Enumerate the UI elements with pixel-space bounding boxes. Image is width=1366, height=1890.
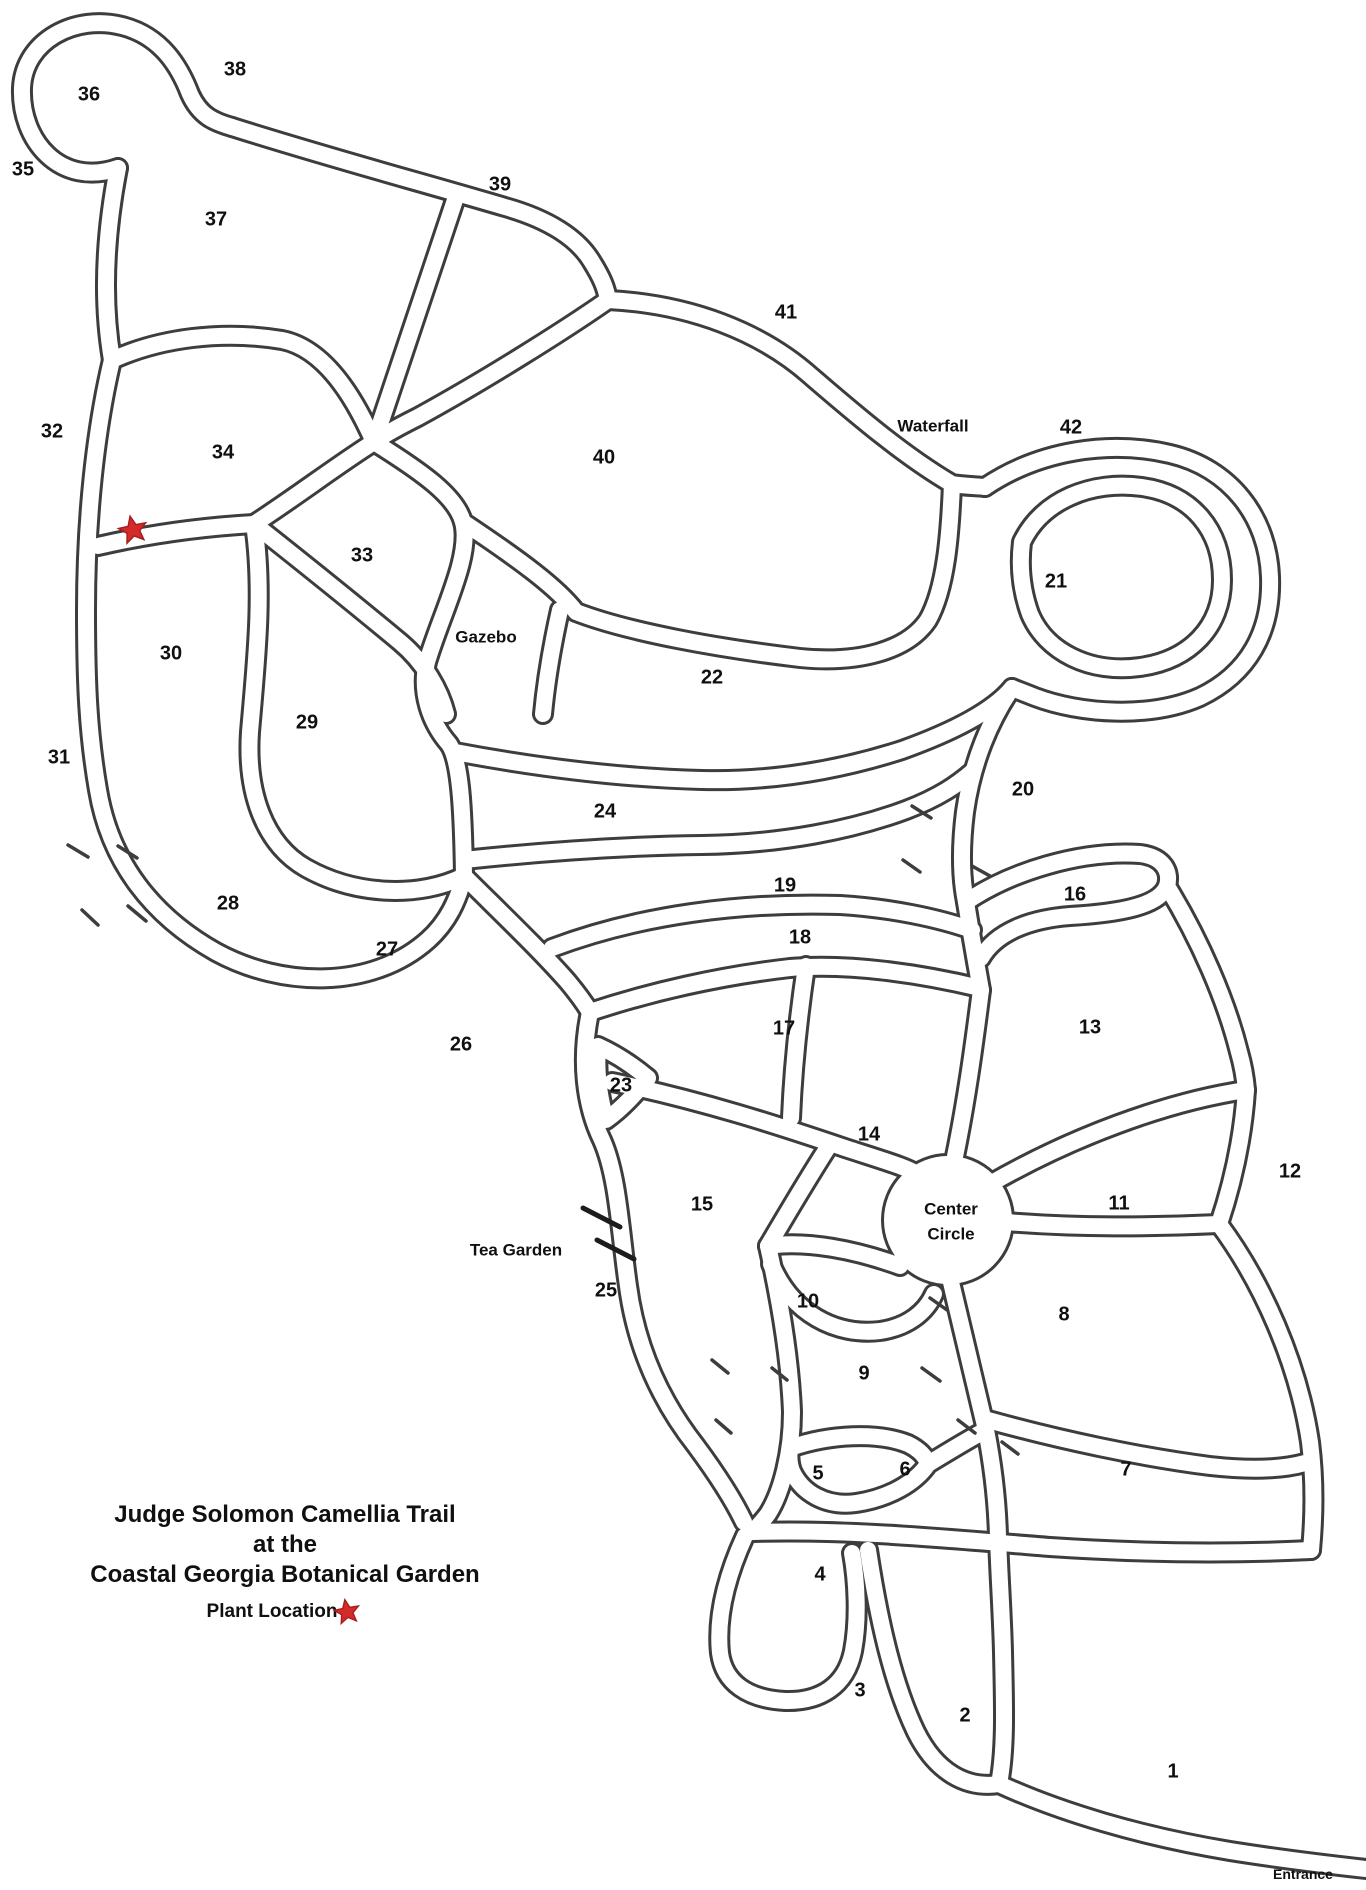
plant-location-star-icon (116, 513, 150, 547)
legend-plant-location-label: Plant Location (207, 1601, 338, 1623)
trail-corridor-outlines (22, 23, 1366, 1869)
map-title: Judge Solomon Camellia Trail at the Coas… (5, 1500, 565, 1590)
trail-map-page: 1234567891011121314151617181920212223242… (0, 0, 1366, 1890)
legend-star-icon (332, 1597, 362, 1627)
trail-map-drawing (0, 0, 1366, 1890)
title-line-2: at the (5, 1530, 565, 1560)
title-line-3: Coastal Georgia Botanical Garden (5, 1560, 565, 1590)
title-line-1: Judge Solomon Camellia Trail (5, 1500, 565, 1530)
